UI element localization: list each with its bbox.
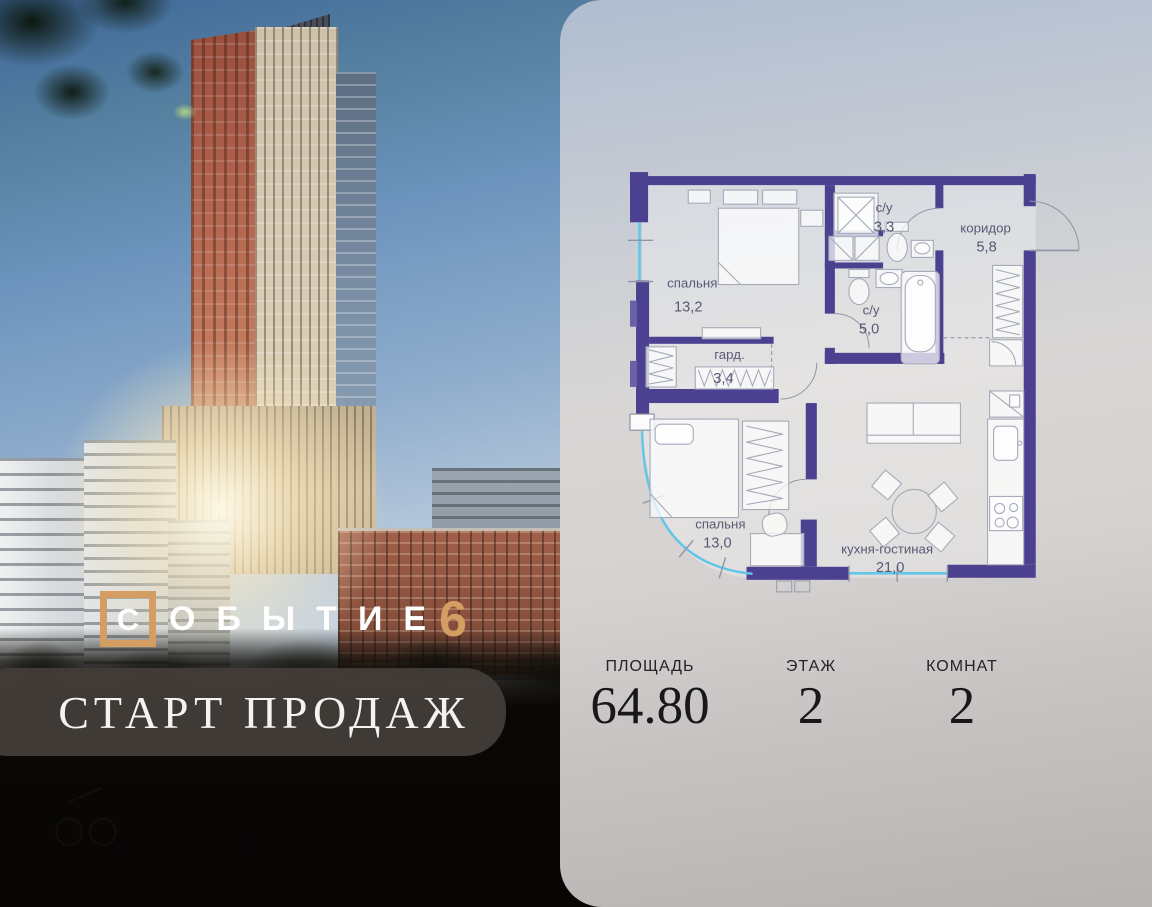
stat-area: ПЛОЩАДЬ 64.80 — [590, 658, 709, 734]
floorplan: спальня 13,2 с/у 3,3 коридор 5,8 с/у 5,0… — [628, 170, 1090, 612]
stat-rooms-value: 2 — [926, 679, 998, 734]
room-area-label: 5,0 — [859, 322, 879, 338]
stat-rooms-label: КОМНАТ — [926, 658, 998, 676]
foreground-leaves — [0, 0, 240, 210]
cyclist-silhouette — [55, 790, 119, 846]
room-name-label: кухня-гостиная — [841, 542, 933, 557]
sales-start-label: СТАРТ ПРОДАЖ — [58, 686, 470, 739]
brand-logo: С ОБЫТИЕ 6 — [100, 588, 467, 650]
room-name-label: коридор — [960, 220, 1011, 235]
room-name-label: спальня — [667, 276, 717, 291]
room-name-label: с/у — [863, 303, 880, 318]
logo-word: ОБЫТИЕ — [169, 602, 447, 636]
building-photo: С ОБЫТИЕ 6 СТАРТ ПРОДАЖ — [0, 0, 600, 907]
stat-floor: ЭТАЖ 2 — [786, 658, 836, 734]
room-area-label: 3,3 — [874, 219, 894, 235]
stats-row: ПЛОЩАДЬ 64.80 ЭТАЖ 2 КОМНАТ 2 — [560, 658, 1152, 758]
listing-card: С ОБЫТИЕ 6 СТАРТ ПРОДАЖ — [0, 0, 1152, 907]
logo-number: 6 — [439, 594, 467, 644]
room-name-label: с/у — [876, 200, 893, 215]
room-area-label: 13,0 — [703, 536, 732, 552]
apartment-panel: спальня 13,2 с/у 3,3 коридор 5,8 с/у 5,0… — [560, 0, 1152, 907]
room-area-label: 21,0 — [876, 560, 905, 576]
room-area-label: 3,4 — [713, 371, 733, 387]
room-name-label: гард. — [714, 347, 744, 362]
stat-rooms: КОМНАТ 2 — [926, 658, 998, 734]
stat-floor-value: 2 — [786, 679, 836, 734]
stat-area-label: ПЛОЩАДЬ — [590, 658, 709, 676]
logo-letter-box: С — [100, 591, 156, 647]
stat-area-value: 64.80 — [590, 679, 709, 734]
stat-floor-label: ЭТАЖ — [786, 658, 836, 676]
room-area-label: 13,2 — [674, 300, 703, 316]
room-name-label: спальня — [695, 517, 745, 532]
sales-start-banner: СТАРТ ПРОДАЖ — [0, 668, 506, 756]
logo-boxed-letter: С — [117, 604, 139, 635]
room-area-label: 5,8 — [976, 239, 996, 255]
